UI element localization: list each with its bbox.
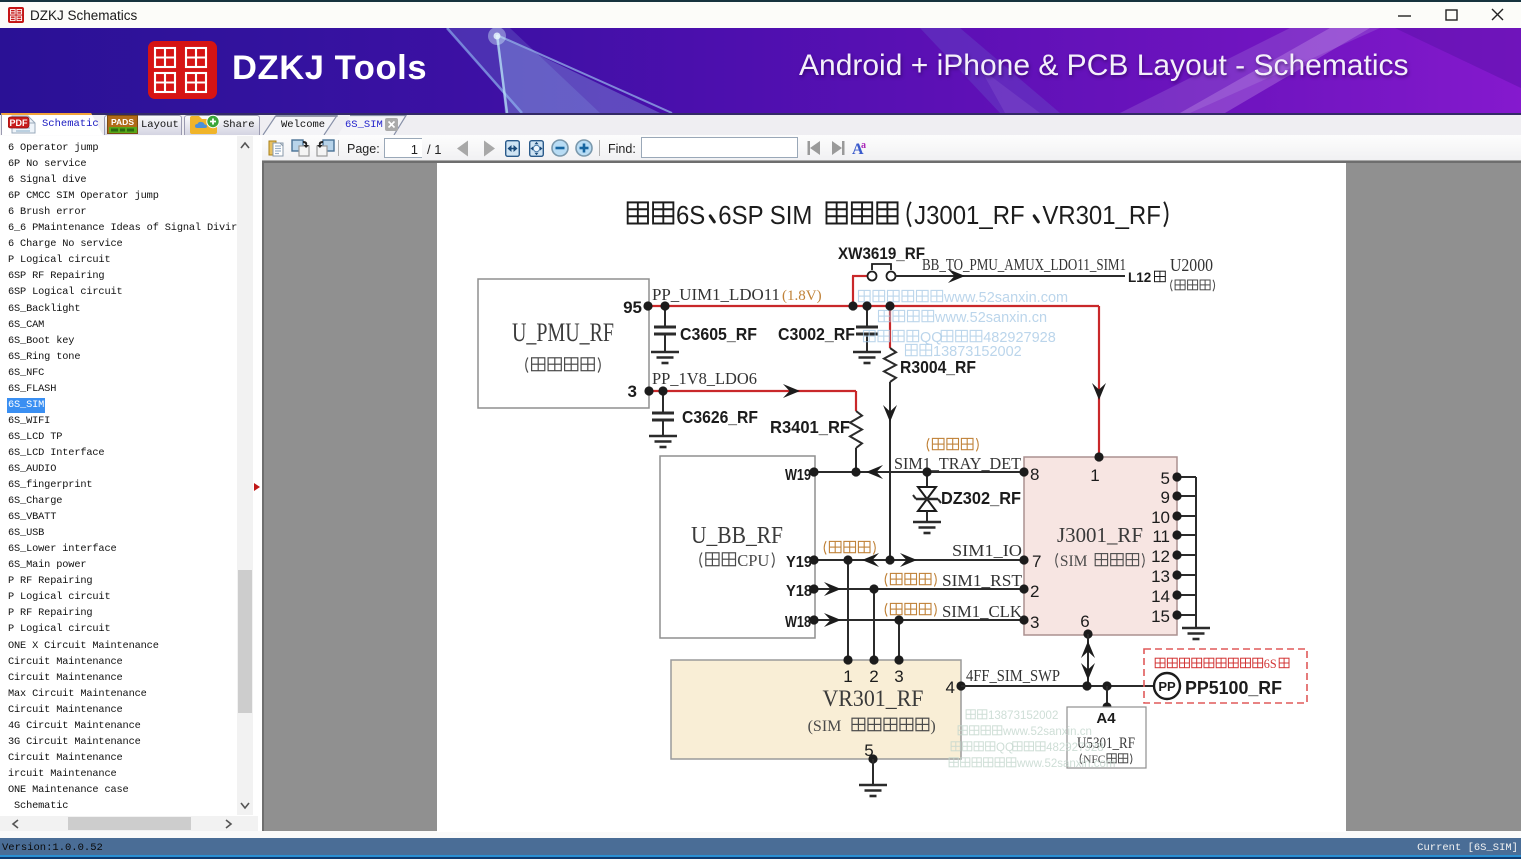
svg-text:a: a bbox=[861, 140, 866, 151]
svg-text:C3605_RF: C3605_RF bbox=[680, 324, 757, 344]
svg-text:XW3619_RF: XW3619_RF bbox=[838, 245, 925, 263]
svg-text:PADS: PADS bbox=[111, 117, 134, 127]
svg-text:SIM: SIM bbox=[1060, 553, 1088, 570]
svg-text:www.52sanxin.cn: www.52sanxin.cn bbox=[934, 310, 1047, 326]
svg-text:2: 2 bbox=[869, 667, 878, 686]
svg-text:3: 3 bbox=[894, 667, 903, 686]
svg-text:4: 4 bbox=[946, 678, 955, 697]
svg-text:BB_TO_PMU_AMUX_LDO11_SIM1: BB_TO_PMU_AMUX_LDO11_SIM1 bbox=[922, 255, 1126, 274]
svg-text:3: 3 bbox=[628, 382, 637, 401]
svg-text:VR301_RF: VR301_RF bbox=[1042, 202, 1161, 230]
svg-text:L12: L12 bbox=[1128, 270, 1151, 285]
svg-text:6: 6 bbox=[1080, 612, 1089, 631]
svg-text:R3401_RF: R3401_RF bbox=[770, 417, 850, 437]
svg-text:W18: W18 bbox=[785, 614, 811, 631]
svg-text:6SP SIM: 6SP SIM bbox=[718, 202, 812, 230]
svg-text:J3001_RF: J3001_RF bbox=[1057, 523, 1143, 547]
svg-text:J3001_RF: J3001_RF bbox=[914, 202, 1025, 230]
svg-text:VR301_RF: VR301_RF bbox=[823, 686, 924, 711]
svg-text:6S: 6S bbox=[676, 202, 705, 230]
svg-text:PP: PP bbox=[1158, 679, 1176, 694]
svg-text:CPU: CPU bbox=[737, 551, 769, 570]
svg-text:): ) bbox=[930, 718, 935, 735]
svg-text:10: 10 bbox=[1151, 508, 1170, 527]
svg-text:14: 14 bbox=[1151, 587, 1170, 606]
svg-text:SIM1_TRAY_DET: SIM1_TRAY_DET bbox=[894, 454, 1022, 473]
svg-text:Y18: Y18 bbox=[786, 583, 812, 600]
svg-text:13873152002: 13873152002 bbox=[933, 344, 1022, 360]
svg-text:11: 11 bbox=[1152, 527, 1170, 546]
svg-text:482927928: 482927928 bbox=[1046, 742, 1104, 754]
svg-text:9: 9 bbox=[1161, 488, 1170, 507]
svg-text:U_BB_RF: U_BB_RF bbox=[691, 523, 783, 549]
svg-text:C3002_RF: C3002_RF bbox=[778, 324, 855, 344]
svg-text:PP_1V8_LDO6: PP_1V8_LDO6 bbox=[652, 369, 757, 388]
svg-text:PP_UIM1_LDO11: PP_UIM1_LDO11 bbox=[652, 285, 780, 304]
svg-text:Y19: Y19 bbox=[786, 554, 812, 571]
svg-text:12: 12 bbox=[1151, 547, 1170, 566]
svg-text:R3004_RF: R3004_RF bbox=[900, 357, 976, 377]
svg-text:C3626_RF: C3626_RF bbox=[682, 407, 758, 427]
svg-text:www.52sanxin.cn: www.52sanxin.cn bbox=[1002, 726, 1092, 738]
svg-text:8: 8 bbox=[1030, 465, 1039, 484]
svg-text:1: 1 bbox=[843, 667, 852, 686]
svg-text:4FF_SIM_SWP: 4FF_SIM_SWP bbox=[966, 666, 1060, 685]
svg-text:W19: W19 bbox=[785, 467, 811, 484]
svg-text:SIM1_CLK: SIM1_CLK bbox=[942, 602, 1023, 621]
svg-text:U_PMU_RF: U_PMU_RF bbox=[512, 318, 614, 347]
svg-text:95: 95 bbox=[623, 298, 642, 317]
svg-text:SIM1_RST: SIM1_RST bbox=[942, 571, 1023, 590]
svg-text:A4: A4 bbox=[1096, 710, 1116, 727]
svg-text:6S: 6S bbox=[1264, 657, 1277, 671]
svg-text:(1.8V): (1.8V) bbox=[782, 288, 822, 304]
svg-text:3: 3 bbox=[1030, 613, 1039, 632]
svg-text:7: 7 bbox=[1032, 552, 1041, 571]
svg-text:SIM1_IO: SIM1_IO bbox=[952, 541, 1022, 560]
svg-text:13: 13 bbox=[1151, 567, 1170, 586]
svg-text:5: 5 bbox=[1161, 469, 1170, 488]
svg-text:DZ302_RF: DZ302_RF bbox=[941, 488, 1021, 508]
svg-text:QQ: QQ bbox=[996, 742, 1014, 754]
svg-text:www.52sanxin.com: www.52sanxin.com bbox=[943, 290, 1068, 306]
svg-text:(SIM: (SIM bbox=[808, 718, 842, 735]
svg-text:U2000: U2000 bbox=[1170, 255, 1213, 275]
svg-text:www.52sanxin.com: www.52sanxin.com bbox=[1016, 758, 1115, 770]
svg-text:13873152002: 13873152002 bbox=[988, 710, 1058, 722]
svg-text:2: 2 bbox=[1030, 582, 1039, 601]
svg-text:1: 1 bbox=[1090, 466, 1099, 485]
svg-text:PDF: PDF bbox=[10, 118, 29, 128]
svg-text:15: 15 bbox=[1151, 607, 1170, 626]
svg-text:PP5100_RF: PP5100_RF bbox=[1185, 677, 1282, 698]
